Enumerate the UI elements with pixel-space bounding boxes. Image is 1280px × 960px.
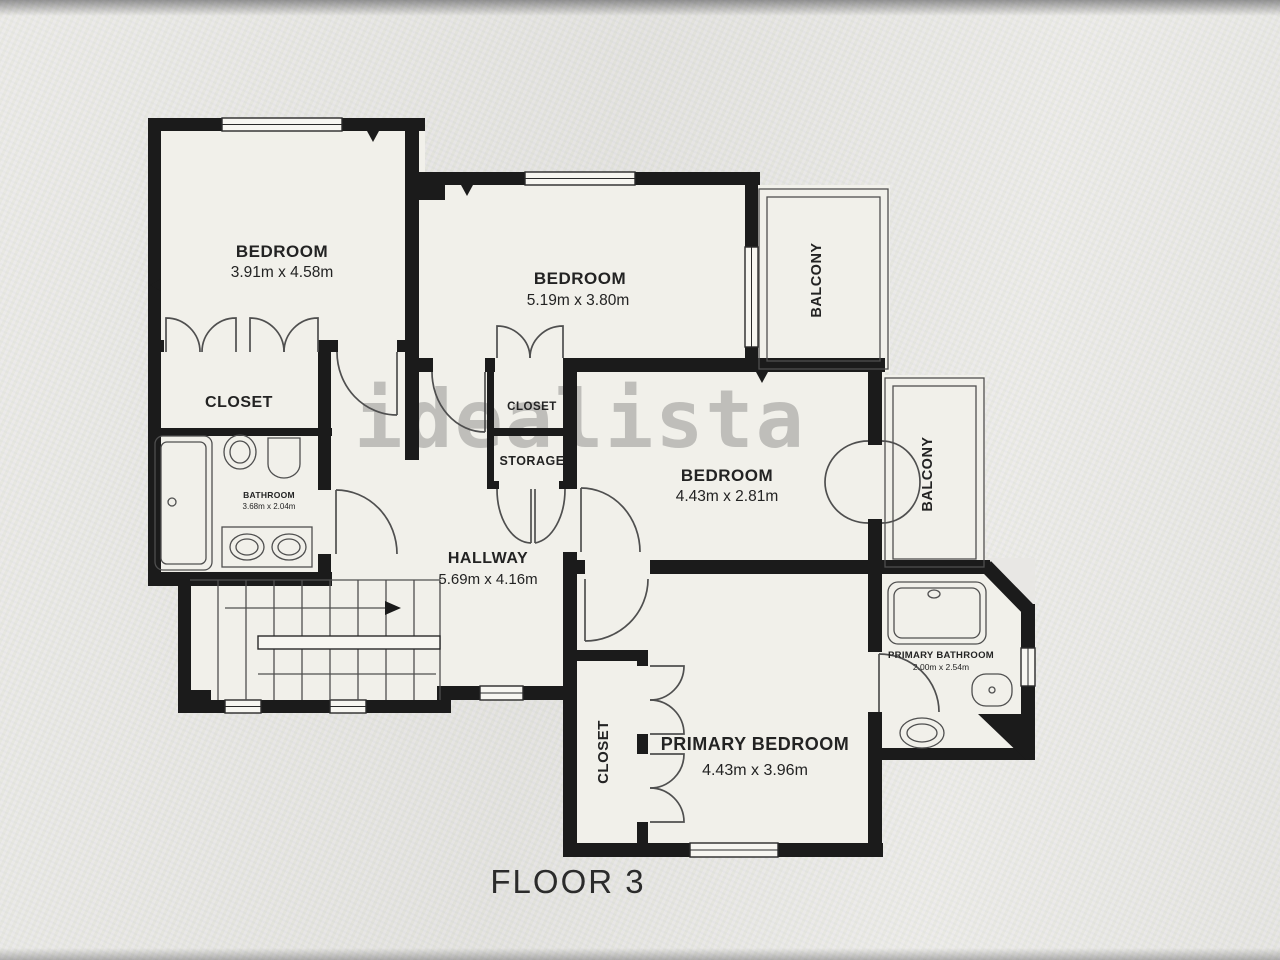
primary-bedroom-dims: 4.43m x 3.96m [702, 762, 808, 779]
hallway-name: HALLWAY [448, 550, 528, 567]
closet3-label: CLOSET [595, 720, 612, 784]
window [1021, 648, 1035, 686]
bathroom-name: BATHROOM [243, 490, 295, 500]
storage-label: STORAGE [499, 454, 564, 468]
window [480, 686, 523, 700]
bedroom3-name: BEDROOM [681, 466, 773, 485]
bedroom1-name: BEDROOM [236, 242, 328, 261]
window [225, 700, 261, 713]
bedroom2-dims: 5.19m x 3.80m [527, 292, 630, 309]
bathroom-dims: 3.68m x 2.04m [243, 502, 296, 511]
floor-plan-photo: idealista [0, 0, 1280, 960]
window [525, 172, 635, 185]
balcony1-label: BALCONY [809, 242, 825, 317]
window [330, 700, 366, 713]
room-fills [148, 118, 1035, 857]
window [745, 247, 758, 347]
closet2-label: CLOSET [507, 401, 557, 413]
primary-bedroom-name: PRIMARY BEDROOM [661, 734, 850, 754]
primary-bathroom-name: PRIMARY BATHROOM [888, 650, 994, 661]
closet1-label: CLOSET [205, 394, 273, 411]
primary-bathroom-dims: 2.00m x 2.54m [913, 662, 969, 672]
watermark-idealista: idealista [354, 373, 805, 466]
window [690, 843, 778, 857]
bedroom1-dims: 3.91m x 4.58m [231, 264, 334, 281]
hallway-dims: 5.69m x 4.16m [438, 571, 537, 588]
window [222, 118, 342, 131]
floor-label: FLOOR 3 [490, 863, 645, 900]
balcony2-label: BALCONY [920, 436, 936, 511]
floor-plan: idealista [0, 0, 1280, 960]
bedroom3-dims: 4.43m x 2.81m [676, 488, 779, 505]
bedroom2-name: BEDROOM [534, 269, 626, 288]
